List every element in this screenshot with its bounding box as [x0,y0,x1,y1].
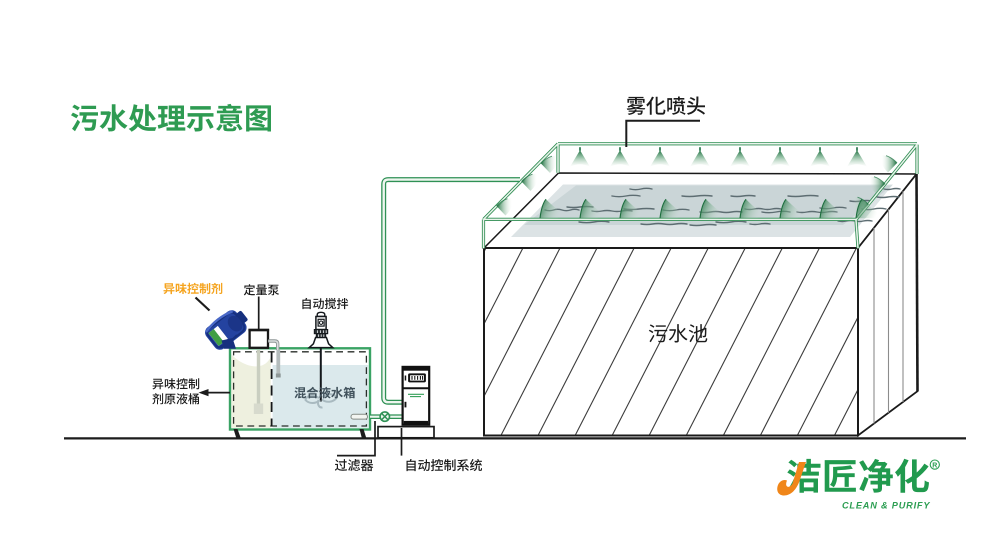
svg-text:R: R [932,463,937,470]
svg-text:CLEAN & PURIFY: CLEAN & PURIFY [842,501,930,511]
